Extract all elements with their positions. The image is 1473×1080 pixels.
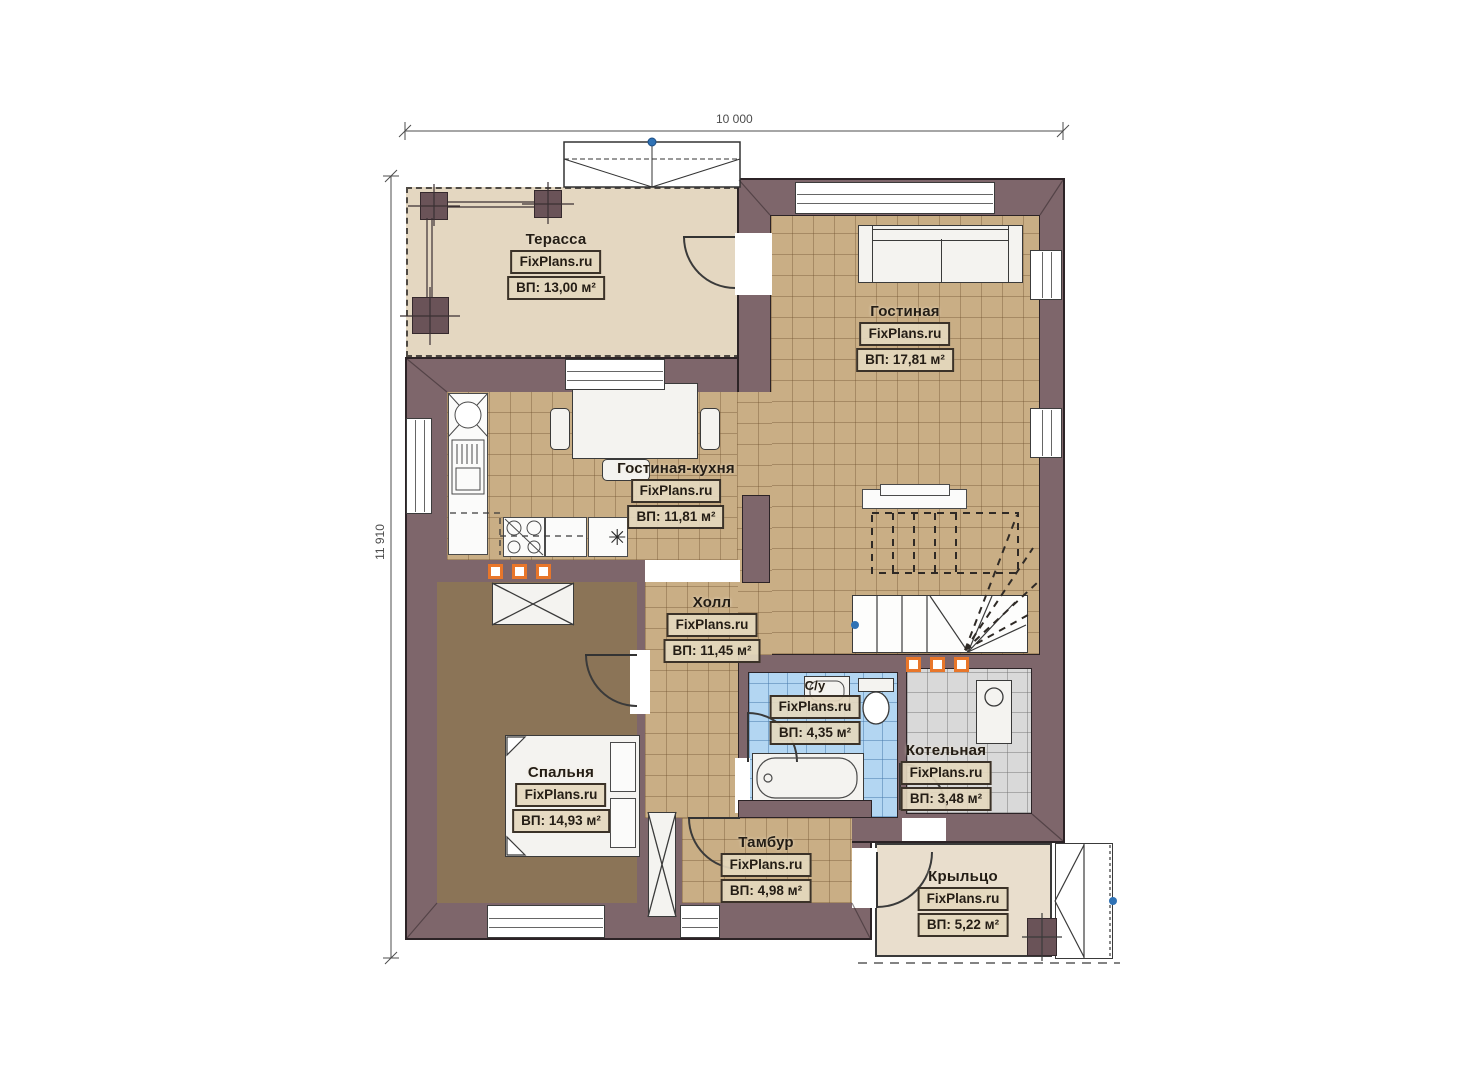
room-brand: FixPlans.ru (860, 322, 951, 346)
window-kitchen-west (406, 418, 432, 514)
room-label-living: Гостиная FixPlans.ru ВП: 17,81 м² (856, 303, 954, 372)
room-name: Спальня (528, 764, 594, 781)
sofa-armrest (1008, 226, 1022, 282)
door-opening-entrance (852, 848, 877, 908)
room-label-tambur: Тамбур FixPlans.ru ВП: 4,98 м² (721, 834, 812, 903)
room-area: ВП: 4,35 м² (770, 721, 860, 745)
window-living-east-1 (1030, 250, 1062, 300)
room-label-bathroom: С/у FixPlans.ru ВП: 4,35 м² (770, 678, 861, 745)
room-area: ВП: 4,98 м² (721, 879, 811, 903)
wardrobe (492, 583, 574, 625)
terrace-column (534, 190, 562, 218)
room-area: ВП: 13,00 м² (507, 276, 605, 300)
room-brand: FixPlans.ru (770, 695, 861, 719)
room-label-terrace: Терасса FixPlans.ru ВП: 13,00 м² (507, 231, 605, 300)
room-label-boiler: Котельная FixPlans.ru ВП: 3,48 м² (901, 742, 992, 811)
kitchen-hall-lintel (645, 560, 740, 582)
chair (550, 408, 570, 450)
vent-duct-icon (906, 657, 921, 672)
terrace-column (412, 297, 449, 334)
vent-duct-icon (488, 564, 503, 579)
door-opening-terrace (735, 233, 772, 295)
room-name: Холл (693, 594, 731, 611)
room-label-kitchen: Гостиная-кухня FixPlans.ru ВП: 11,81 м² (617, 460, 735, 529)
room-name: С/у (805, 678, 826, 693)
wall-strip-hall-tambur (738, 800, 872, 818)
window-living-north (795, 182, 995, 214)
room-brand: FixPlans.ru (901, 761, 992, 785)
room-name: Гостиная (870, 303, 939, 320)
window-bedroom-south (487, 905, 605, 938)
room-label-hall: Холл FixPlans.ru ВП: 11,45 м² (664, 594, 761, 663)
stove (503, 517, 545, 557)
chair (700, 408, 720, 450)
room-brand: FixPlans.ru (667, 613, 758, 637)
room-label-porch: Крыльцо FixPlans.ru ВП: 5,22 м² (918, 868, 1009, 937)
room-brand: FixPlans.ru (516, 783, 607, 807)
porch-column (1027, 918, 1057, 956)
floor-plan-canvas: 10 000 11 910 (0, 0, 1473, 1080)
window-kitchen-north (565, 359, 665, 390)
stairs-lower-flight (852, 595, 1028, 653)
room-area: ВП: 11,81 м² (628, 505, 725, 529)
room-area: ВП: 5,22 м² (918, 913, 1008, 937)
toilet-tank (858, 678, 894, 692)
tv-panel (880, 484, 950, 496)
room-name: Крыльцо (928, 868, 998, 885)
vent-duct-icon (954, 657, 969, 672)
room-name: Котельная (906, 742, 986, 759)
room-label-bedroom: Спальня FixPlans.ru ВП: 14,93 м² (512, 764, 610, 833)
sofa (858, 225, 1023, 283)
dimension-width-label: 10 000 (712, 112, 757, 126)
pillow (610, 798, 636, 848)
boiler-unit (976, 680, 1012, 744)
room-name: Тамбур (738, 834, 794, 851)
room-area: ВП: 17,81 м² (856, 348, 954, 372)
kitchen-counter-2 (545, 517, 587, 557)
sofa-cushion-divider (941, 239, 942, 282)
room-area: ВП: 14,93 м² (512, 809, 610, 833)
room-name: Терасса (526, 231, 587, 248)
room-area: ВП: 11,45 м² (664, 639, 761, 663)
dining-table (572, 383, 698, 459)
window-living-east-2 (1030, 408, 1062, 458)
terrace-column (420, 192, 448, 220)
vent-duct-icon (536, 564, 551, 579)
dimension-height-label: 11 910 (373, 520, 387, 564)
room-brand: FixPlans.ru (918, 887, 1009, 911)
room-brand: FixPlans.ru (721, 853, 812, 877)
porch-steps (1055, 843, 1113, 959)
pillow (610, 742, 636, 792)
door-opening-boiler (902, 818, 946, 841)
kitchen-counter (448, 393, 488, 555)
window-tambur-south (680, 905, 720, 938)
vent-duct-icon (512, 564, 527, 579)
terrace-canopy-icon (564, 138, 740, 187)
sofa-armrest (859, 226, 873, 282)
room-brand: FixPlans.ru (631, 479, 722, 503)
room-name: Гостиная-кухня (617, 460, 735, 477)
closet (648, 812, 676, 917)
vent-duct-icon (930, 657, 945, 672)
room-brand: FixPlans.ru (511, 250, 602, 274)
room-area: ВП: 3,48 м² (901, 787, 991, 811)
wall-pier-kitchen-living (742, 495, 770, 583)
